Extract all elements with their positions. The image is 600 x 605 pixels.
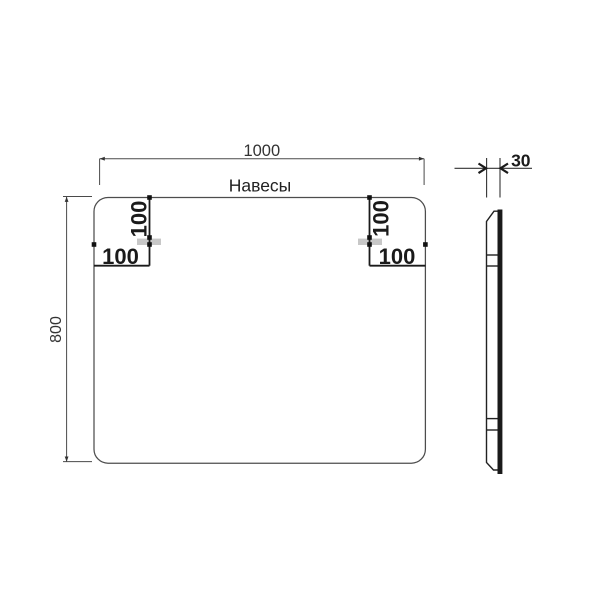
svg-text:1000: 1000 <box>243 142 280 160</box>
svg-text:100: 100 <box>379 244 416 269</box>
svg-text:30: 30 <box>511 151 531 171</box>
svg-text:100: 100 <box>102 244 139 269</box>
svg-text:100: 100 <box>369 200 394 237</box>
svg-text:800: 800 <box>48 316 65 343</box>
svg-text:100: 100 <box>126 201 151 238</box>
svg-text:Навесы: Навесы <box>229 176 292 196</box>
